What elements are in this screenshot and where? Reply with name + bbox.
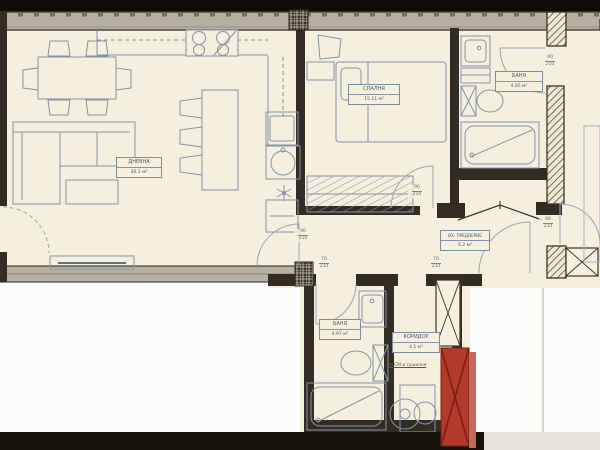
- room-name: КОРИДОР: [393, 333, 439, 343]
- room-label-bath-bottom: БАНЯ 4.97 м²: [319, 319, 361, 340]
- room-label-vestibule: ВХ. ПРЕДВЕРИЕ 6.2 м²: [440, 230, 490, 251]
- door-dimension: 90 210: [408, 185, 426, 198]
- room-name: ВХ. ПРЕДВЕРИЕ: [441, 231, 489, 241]
- room-area: 6.2 м²: [441, 241, 489, 250]
- room-name: БАНЯ: [496, 72, 542, 82]
- bottom-border-strip-light: [484, 432, 600, 450]
- room-area: 15.11 м²: [349, 95, 399, 104]
- room-name: БАНЯ: [320, 320, 360, 330]
- door-dimension: 70 210: [427, 257, 445, 270]
- corridor-note: за СМ и сушилня: [388, 363, 426, 368]
- room-name: ДНЕВНА: [117, 158, 161, 168]
- red-riser-shaft-icon: [441, 348, 476, 448]
- room-label-living: ДНЕВНА 30.1 м²: [116, 157, 162, 178]
- room-area: 4.97 м²: [320, 330, 360, 339]
- door-dimension: 90 210: [294, 229, 312, 242]
- terrace-window-band: [0, 266, 297, 282]
- room-name: СПАЛНЯ: [349, 85, 399, 95]
- room-area: 4.85 м²: [496, 82, 542, 91]
- bottom-border-strip: [0, 432, 484, 450]
- room-label-bedroom: СПАЛНЯ 15.11 м²: [348, 84, 400, 105]
- door-dimension: 70 210: [315, 257, 333, 270]
- floor-plan-drawing: [0, 0, 600, 450]
- stove-icon: [186, 30, 238, 56]
- floor-plan-canvas: ДНЕВНА 30.1 м² СПАЛНЯ 15.11 м² БАНЯ 4.85…: [0, 0, 600, 450]
- room-area: 30.1 м²: [117, 168, 161, 177]
- wardrobe-icon: [307, 176, 413, 212]
- door-dimension: 90 210: [539, 217, 557, 230]
- room-label-corridor: КОРИДОР 4.1 м²: [392, 332, 440, 353]
- door-dimension: 90 210: [541, 55, 559, 68]
- room-area: 4.1 м²: [393, 343, 439, 352]
- room-label-bath-top: БАНЯ 4.85 м²: [495, 71, 543, 92]
